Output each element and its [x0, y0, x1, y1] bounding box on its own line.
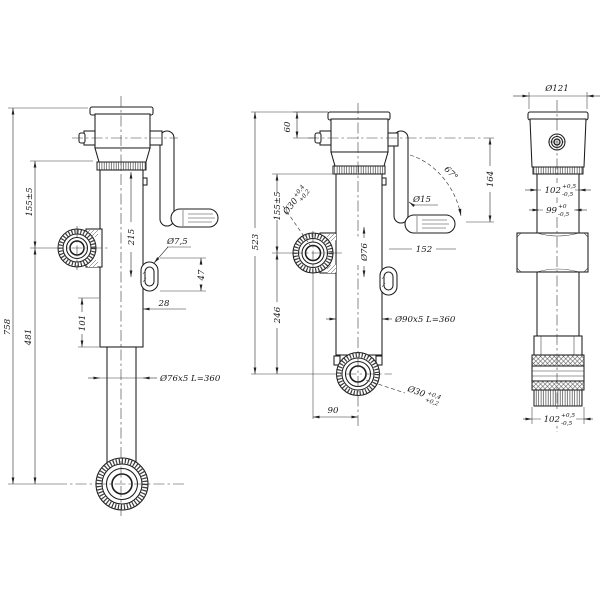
dim-155-mid: 155±5: [273, 191, 283, 220]
middle-cap: [315, 112, 398, 174]
dim-30-upper: Ø30 +0,4 +0,2: [280, 184, 312, 219]
axle-boss-right: [388, 133, 398, 146]
left-crank: [160, 131, 218, 227]
dim-76: Ø76: [359, 242, 370, 262]
jack-drawing: 758 481 155±5 101 215 Ø7,5 47 28 Ø76x5 L…: [0, 0, 600, 600]
slot-inner: [145, 267, 154, 286]
cap-body: [95, 114, 150, 148]
slot-inner: [384, 272, 393, 290]
knurl-band: [97, 162, 146, 170]
dim-164: 164: [486, 171, 496, 187]
cap-taper: [331, 152, 388, 166]
dim-tube-spec-mid: Ø90x5 L=360: [394, 314, 456, 325]
inner-tube: [107, 347, 136, 463]
dim-60: 60: [283, 121, 293, 132]
cap-body: [331, 119, 388, 152]
dim-99: 99: [546, 206, 557, 216]
dim-tube-spec-left: Ø76x5 L=360: [159, 373, 221, 384]
knurl-band: [333, 166, 385, 174]
dim-47: 47: [197, 269, 207, 281]
dim-152: 152: [416, 245, 432, 255]
outer-tube: [100, 170, 143, 347]
middle-crank: [394, 131, 455, 233]
dim-215: 215: [127, 229, 137, 246]
lower-tube: [537, 272, 579, 336]
knurl-band: [533, 167, 583, 174]
dim-523: 523: [251, 233, 261, 250]
dim-102-lower-minus: -0,5: [561, 421, 572, 427]
crank-swing-arc: [410, 155, 461, 216]
dim-102-lower: 102: [544, 415, 560, 425]
right-body: [517, 174, 588, 336]
right-cap: [528, 112, 588, 174]
dim-246: 246: [273, 306, 283, 324]
left-cap: [79, 107, 162, 170]
dim-481: 481: [24, 329, 34, 346]
dim-758: 758: [3, 318, 13, 335]
technical-drawing-sheet: 758 481 155±5 101 215 Ø7,5 47 28 Ø76x5 L…: [0, 0, 600, 600]
dim-15: Ø15: [412, 194, 431, 205]
right-eye-front: [532, 336, 584, 406]
dim-102-upper: 102: [545, 186, 561, 196]
dim-7-5: Ø7,5: [166, 236, 188, 247]
dim-102-lower-plus: +0,5: [561, 413, 575, 419]
dim-121: Ø121: [544, 83, 568, 94]
middle-view: 60 523 155±5 246 Ø76 Ø15 67° 164 152 Ø90…: [251, 103, 496, 428]
dim-30-lower: Ø30 +0,4 +0,2: [404, 383, 442, 408]
dim-102-upper-plus: +0,5: [562, 184, 576, 190]
left-view: 758 481 155±5 101 215 Ø7,5 47 28 Ø76x5 L…: [3, 96, 221, 516]
pivot-housing: [517, 233, 588, 272]
dim-102-upper-minus: -0,5: [562, 192, 573, 198]
dim-99-minus: -0,5: [558, 212, 569, 218]
dim-99-plus: +0: [558, 204, 567, 210]
dim-28: 28: [158, 299, 170, 309]
svg-text:Ø30: Ø30: [405, 383, 427, 400]
dim-155-left: 155±5: [25, 187, 35, 216]
right-view: Ø121 102 +0,5 -0,5 99 +0 -0,5 102 +0,5 -…: [513, 83, 600, 432]
cap-taper: [95, 148, 150, 162]
dim-90: 90: [328, 406, 339, 416]
dim-101: 101: [78, 315, 88, 331]
dim-67: 67°: [442, 165, 460, 183]
left-tubes: [100, 170, 158, 467]
